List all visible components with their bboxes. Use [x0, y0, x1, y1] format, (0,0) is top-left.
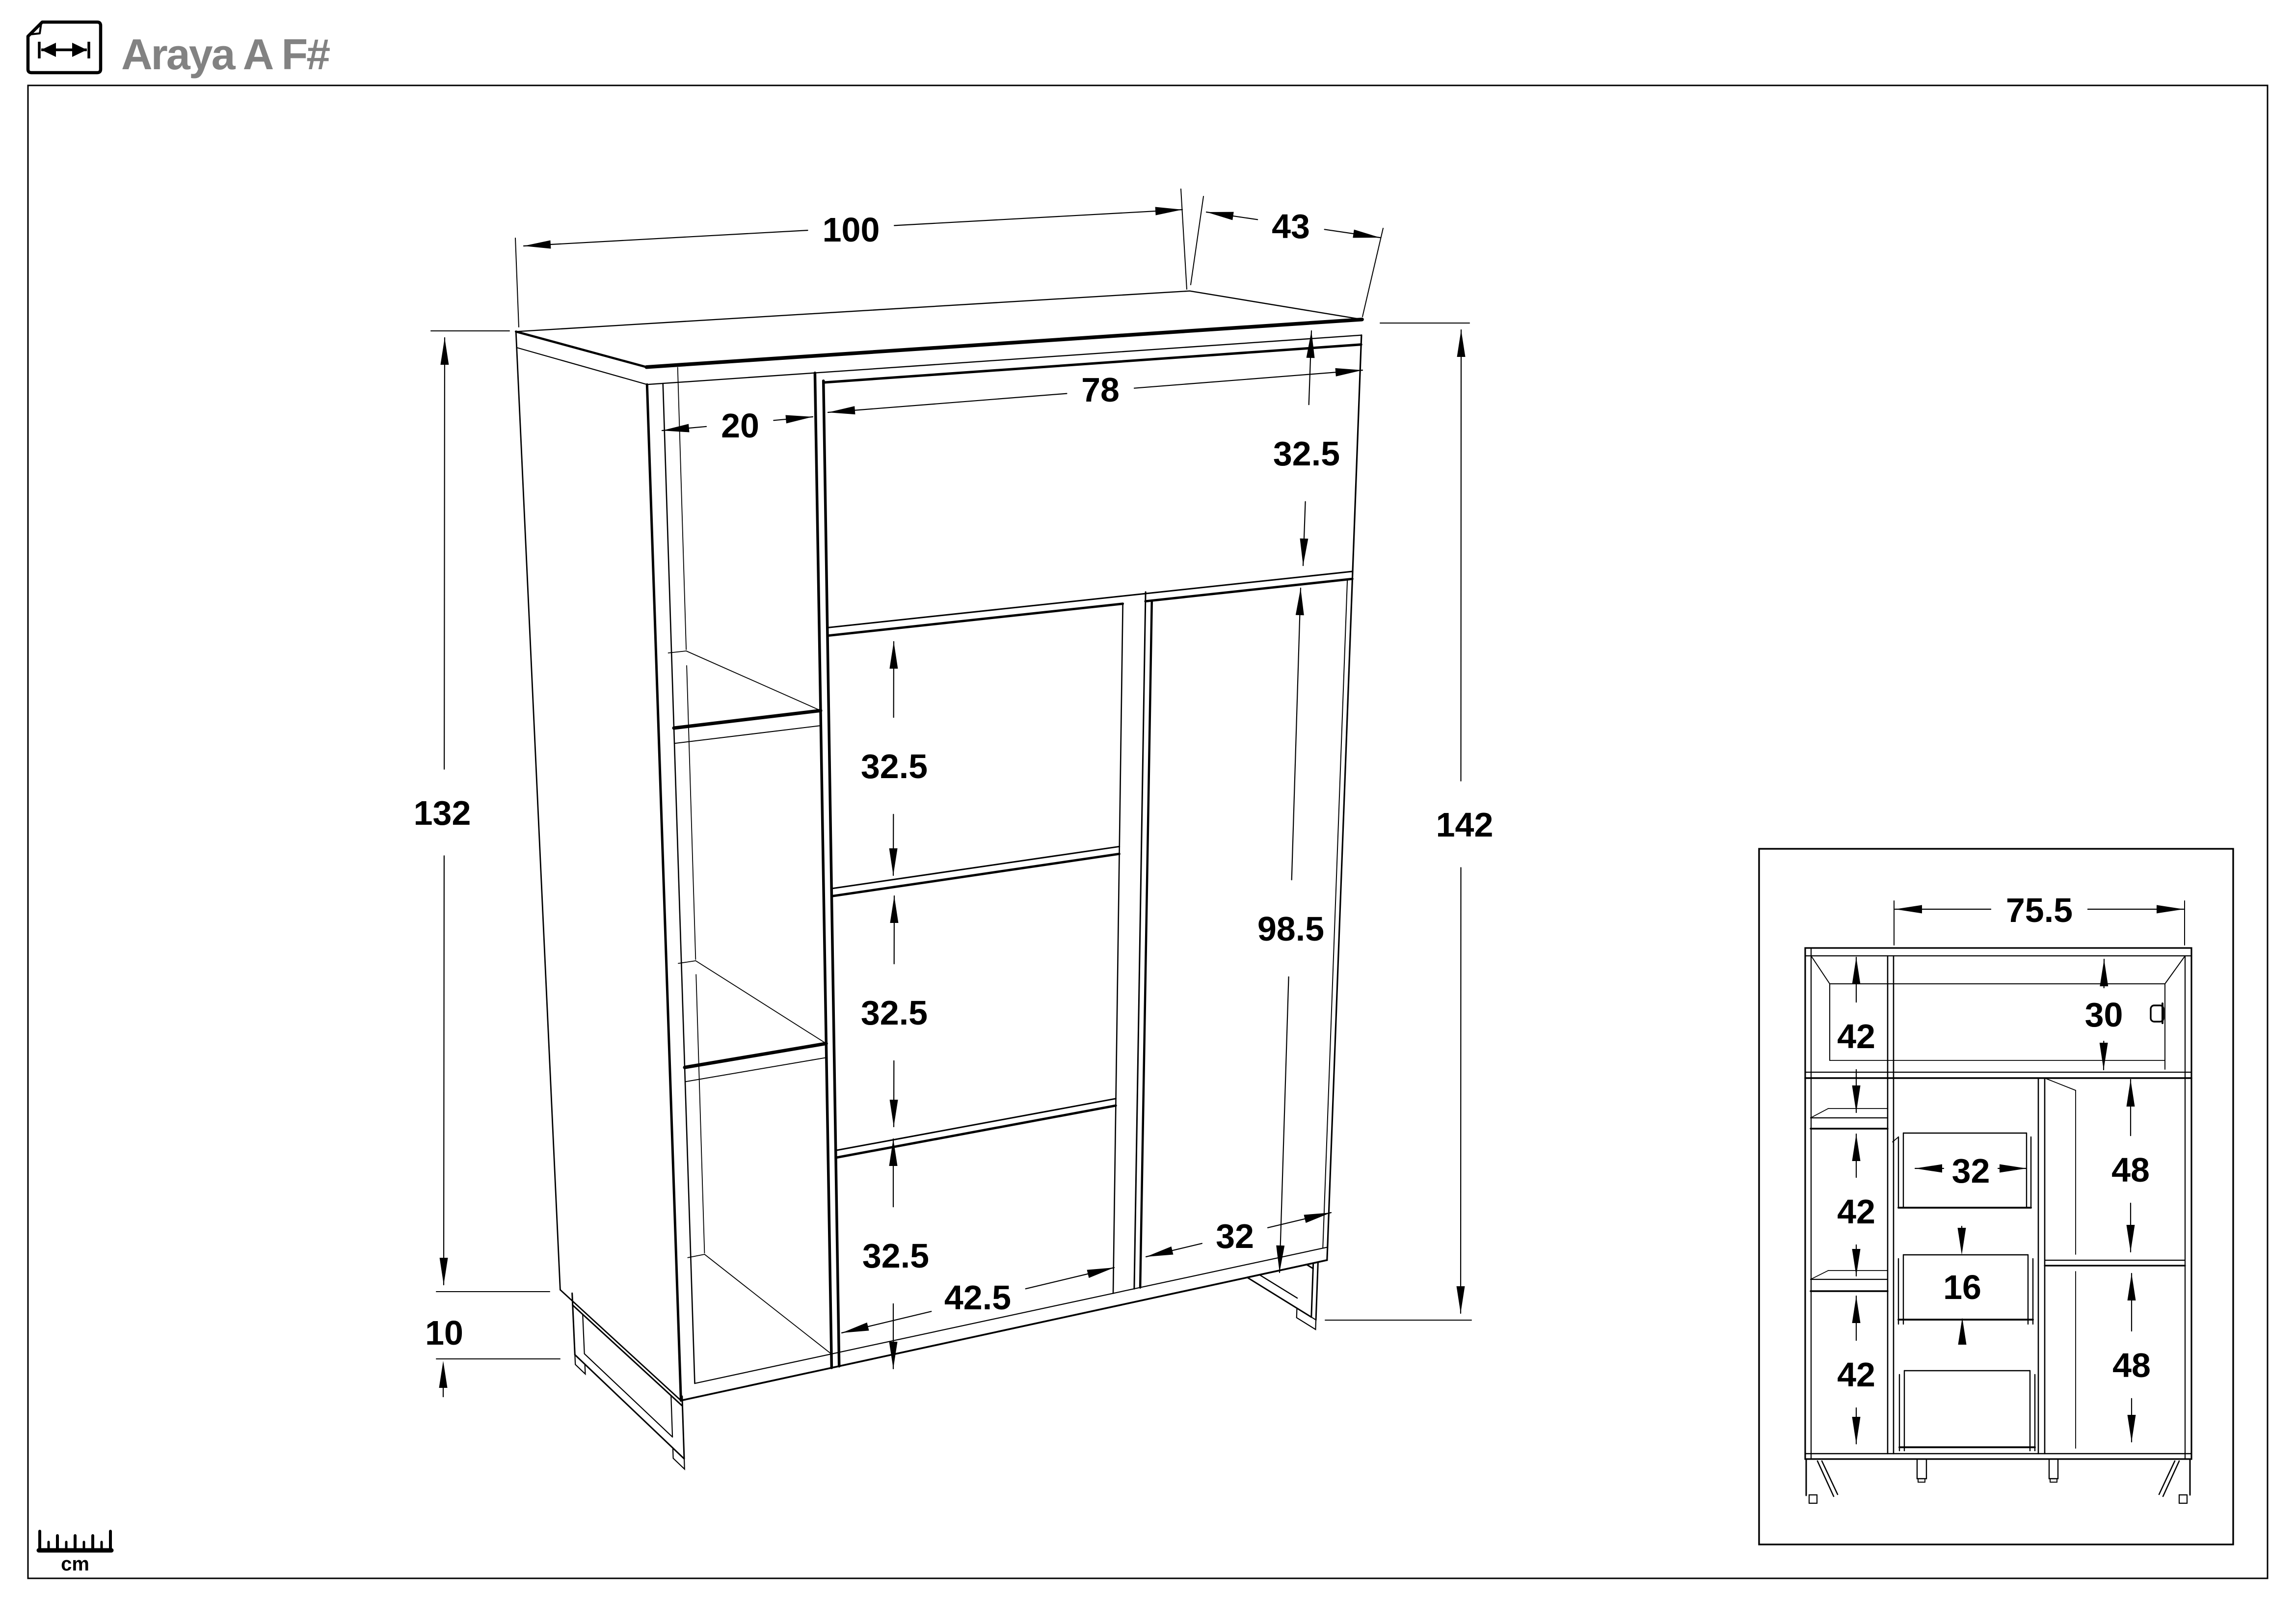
svg-text:20: 20 [721, 406, 759, 445]
svg-text:98.5: 98.5 [1257, 910, 1324, 948]
svg-text:Araya A F#: Araya A F# [121, 30, 330, 79]
svg-text:32.5: 32.5 [862, 1237, 929, 1275]
svg-text:cm: cm [61, 1553, 89, 1575]
svg-text:30: 30 [2085, 996, 2123, 1034]
svg-text:16: 16 [1943, 1268, 1981, 1306]
svg-text:42: 42 [1837, 1355, 1875, 1394]
svg-text:78: 78 [1081, 371, 1120, 409]
svg-text:132: 132 [414, 794, 471, 832]
svg-text:42.5: 42.5 [944, 1278, 1011, 1317]
svg-text:32.5: 32.5 [1273, 434, 1340, 473]
svg-text:32: 32 [1952, 1152, 1990, 1190]
svg-text:142: 142 [1436, 806, 1494, 844]
svg-text:32: 32 [1216, 1217, 1254, 1255]
svg-text:48: 48 [2112, 1346, 2151, 1384]
svg-text:32.5: 32.5 [861, 994, 928, 1032]
svg-text:43: 43 [1272, 207, 1310, 245]
svg-text:75.5: 75.5 [2006, 891, 2073, 929]
svg-text:10: 10 [425, 1314, 463, 1352]
svg-text:42: 42 [1837, 1017, 1875, 1056]
svg-text:100: 100 [823, 211, 880, 249]
svg-text:42: 42 [1837, 1192, 1875, 1231]
svg-text:32.5: 32.5 [861, 747, 928, 785]
svg-text:48: 48 [2111, 1151, 2150, 1189]
